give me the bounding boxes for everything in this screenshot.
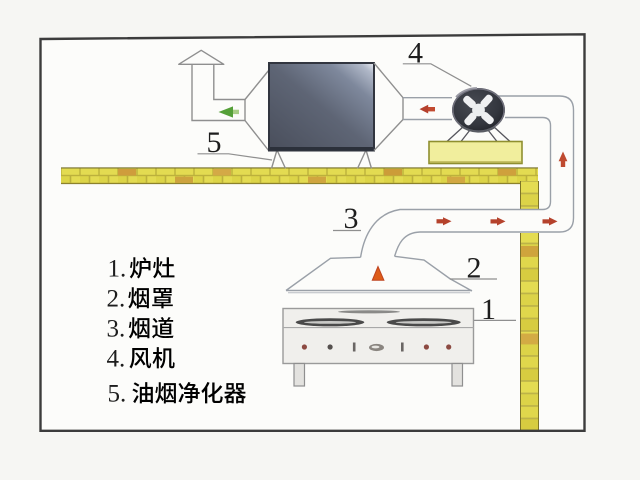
svg-text:1: 1 [481, 293, 496, 326]
svg-text:1.: 1. [108, 256, 127, 283]
svg-text:4.: 4. [107, 346, 126, 373]
svg-text:3.: 3. [107, 316, 126, 343]
svg-text:5.: 5. [108, 381, 127, 408]
svg-text:4: 4 [408, 37, 423, 70]
svg-text:2.: 2. [107, 286, 126, 313]
